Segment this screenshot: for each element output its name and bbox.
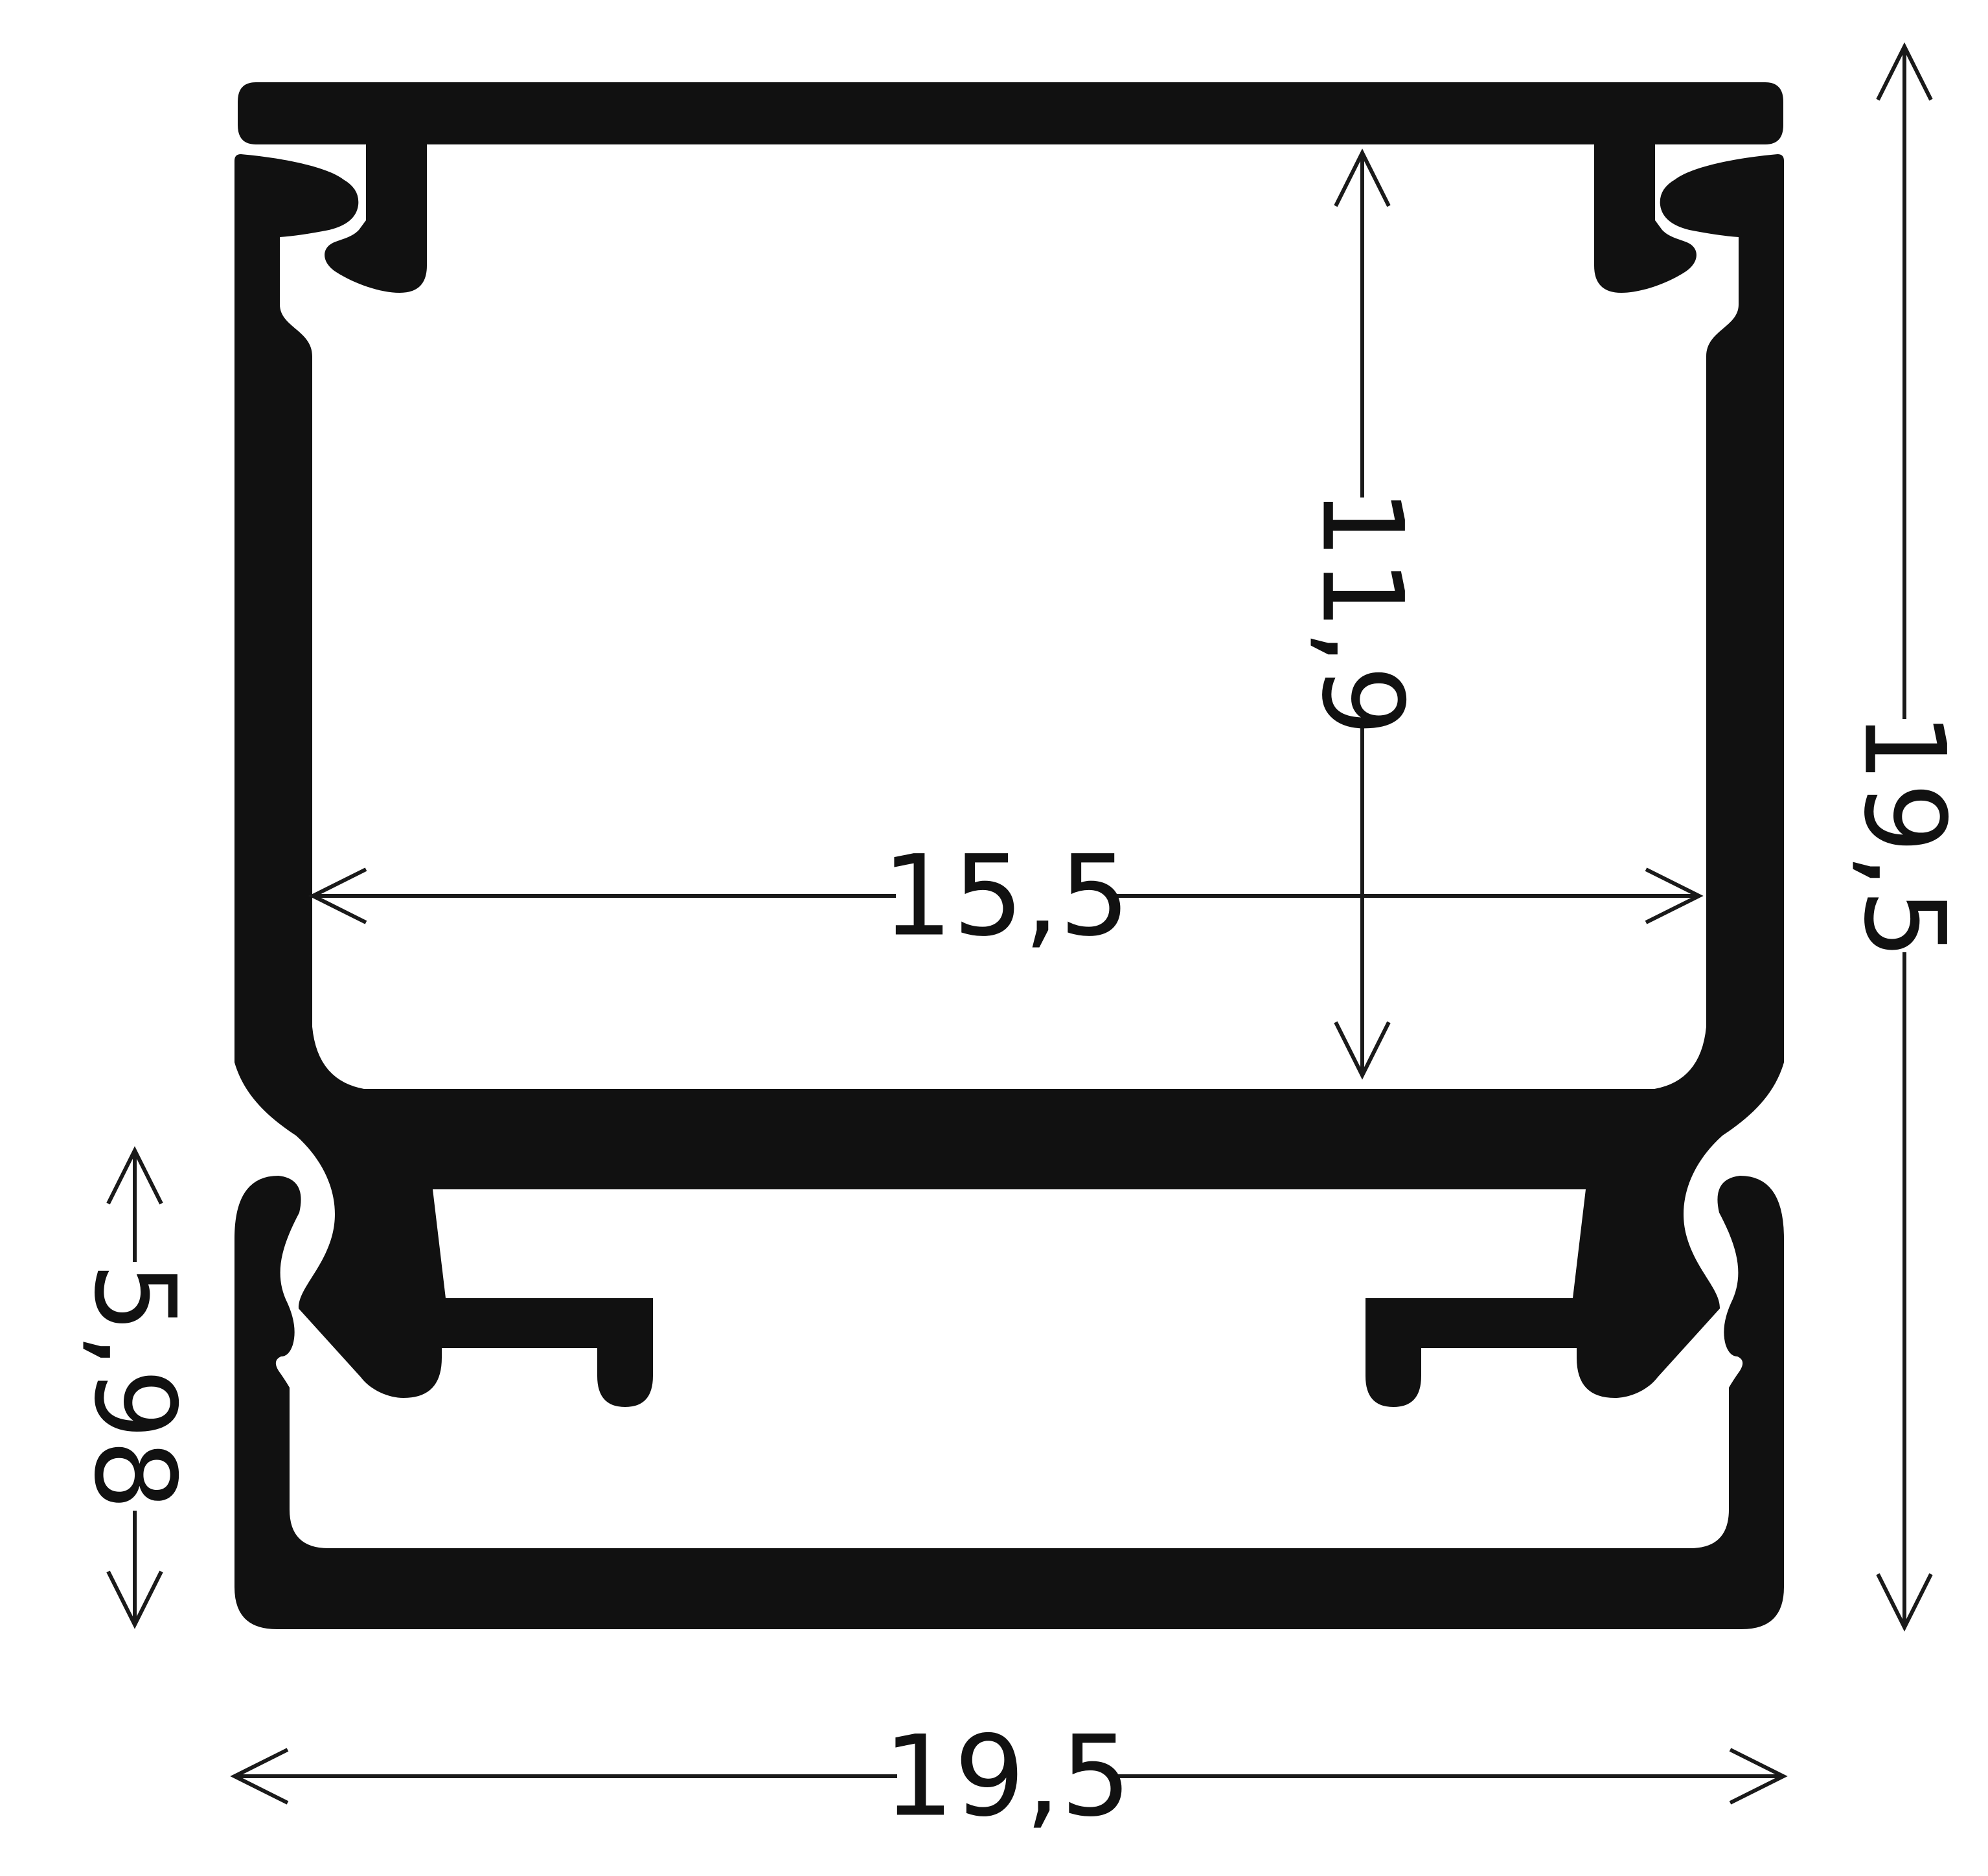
dimension-overall-height-label: 19,5 <box>1840 712 1970 960</box>
dimension-inner-height: 11,9 <box>1297 153 1428 1075</box>
profile-top-plate <box>238 82 1783 144</box>
profile-main-body <box>234 154 1784 1407</box>
dimension-base-height-label: 5,98 <box>70 1263 200 1511</box>
dimension-inner-height-label: 11,9 <box>1297 488 1428 737</box>
dimension-overall-height: 19,5 <box>1840 47 1970 1627</box>
dimension-base-height: 5,98 <box>70 1150 200 1625</box>
dimension-inner-width: 15,5 <box>313 831 1699 961</box>
profile-mounting-rail <box>234 1176 1784 1629</box>
dimension-overall-width-label: 19,5 <box>884 1711 1132 1842</box>
dimension-overall-width: 19,5 <box>234 1711 1783 1842</box>
dimension-inner-width-label: 15,5 <box>882 831 1130 961</box>
technical-drawing: 11,9 15,5 19,5 5,98 19,5 <box>0 0 1988 1876</box>
